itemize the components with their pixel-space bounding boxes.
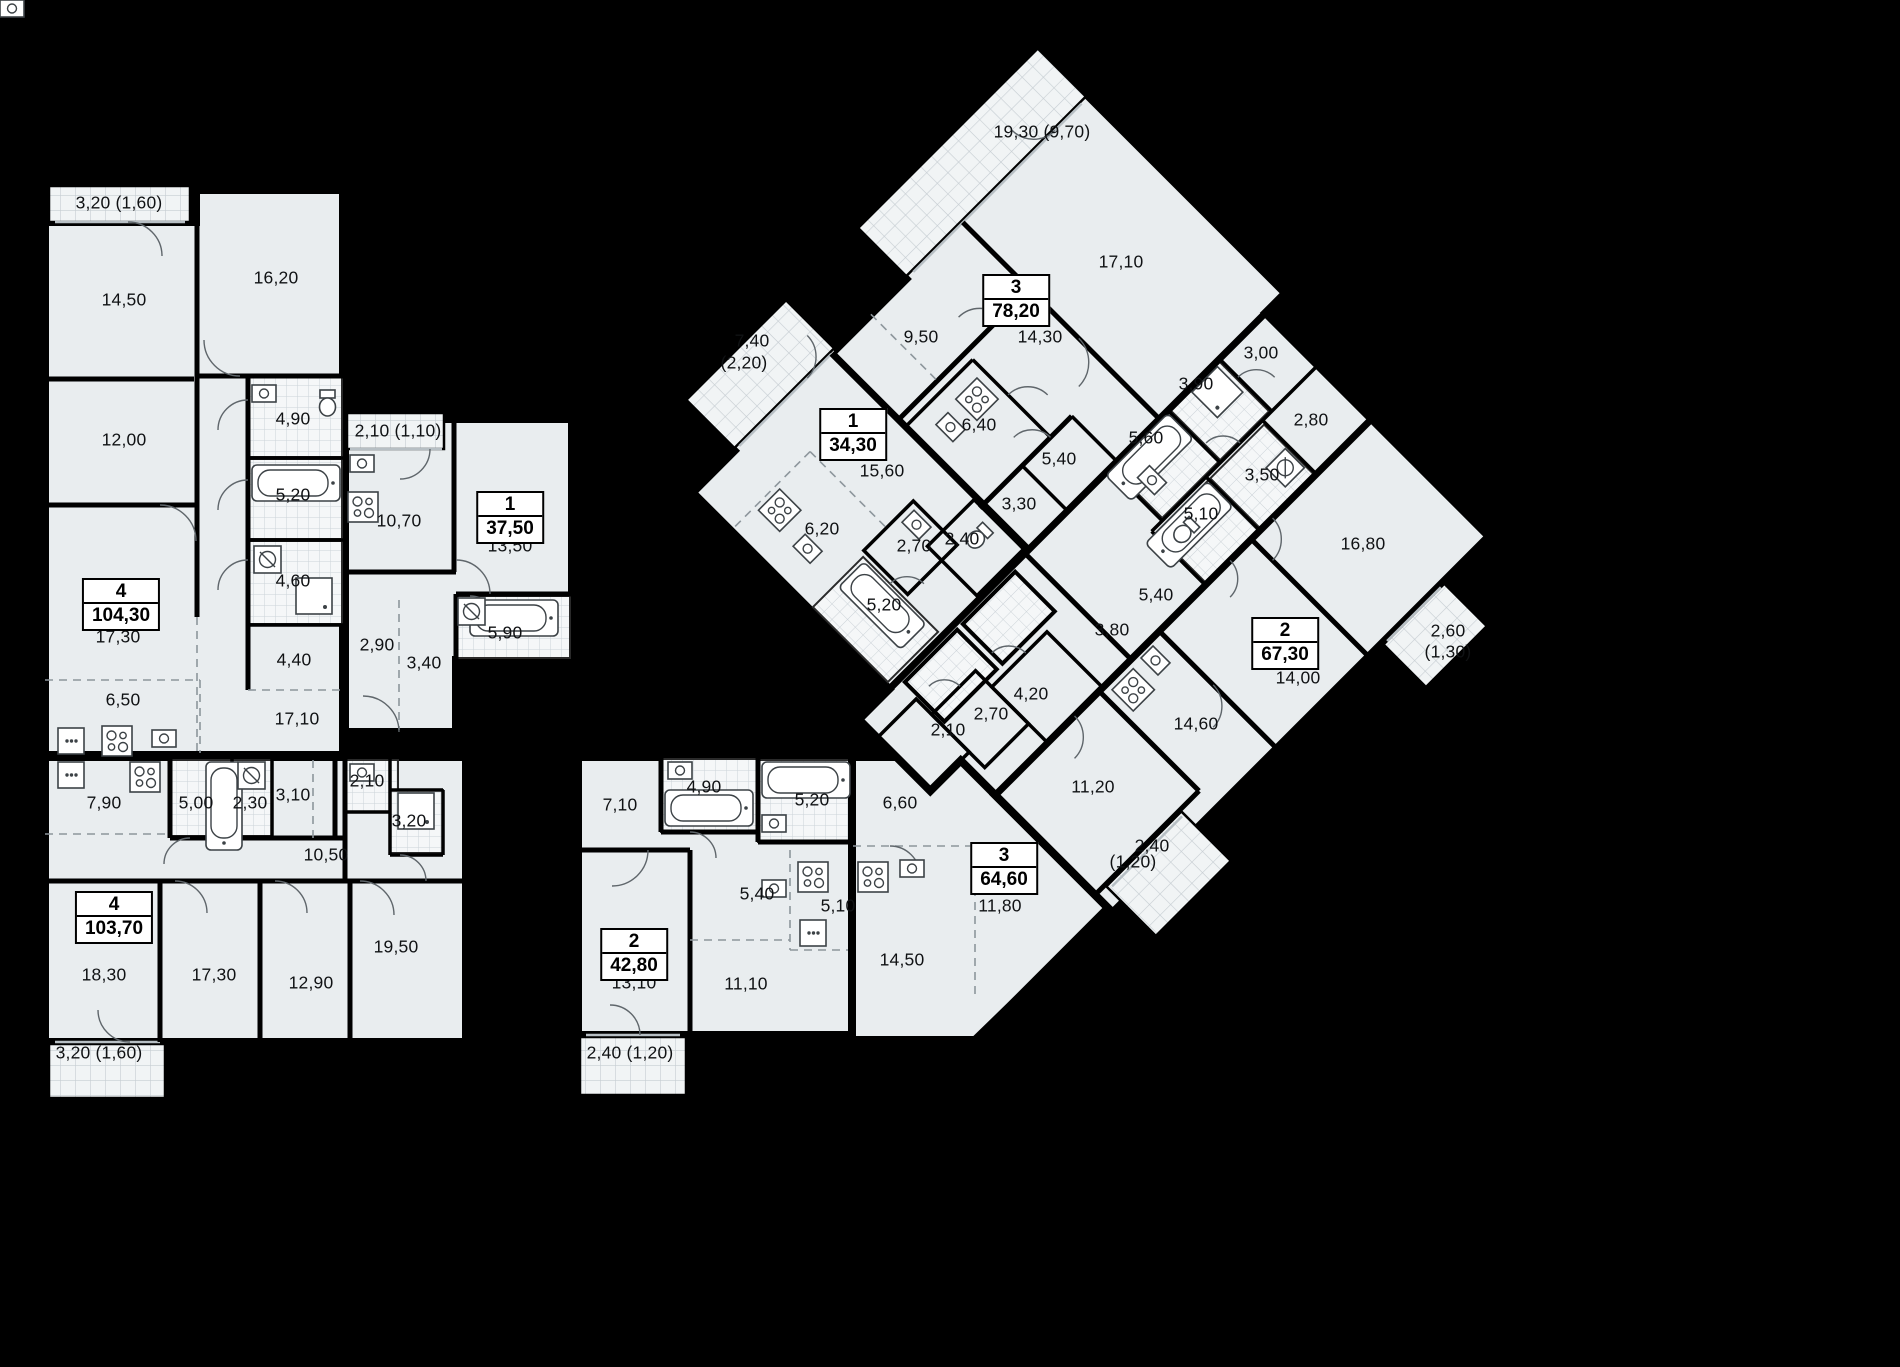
area-label: 5,40 (1139, 585, 1174, 606)
apartment-rooms-count: 3 (984, 276, 1048, 300)
area-label: 9,50 (904, 327, 939, 348)
apartment-rooms-count: 1 (821, 410, 885, 434)
area-label: 17,10 (275, 709, 320, 730)
area-label: 2,60 (1431, 621, 1466, 642)
area-label: 3,20 (1,60) (76, 193, 163, 214)
apartment-badge: 267,30 (1251, 617, 1319, 670)
area-label: 14,50 (102, 290, 147, 311)
area-label: (1,20) (1110, 852, 1157, 873)
area-label: 5,40 (740, 884, 775, 905)
area-label: 10,50 (304, 845, 349, 866)
area-label: 2,90 (360, 635, 395, 656)
area-label: 5,40 (1042, 449, 1077, 470)
apartment-rooms-count: 1 (478, 493, 542, 517)
apartment-area: 42,80 (602, 954, 666, 979)
area-label: 10,70 (377, 511, 422, 532)
apartment-badge: 4104,30 (82, 578, 160, 631)
area-label: 3,40 (407, 653, 442, 674)
area-label: 14,60 (1174, 714, 1219, 735)
area-label: 5,20 (795, 790, 830, 811)
apartment-area: 37,50 (478, 517, 542, 542)
area-label: 5,10 (1184, 504, 1219, 525)
area-label: 16,80 (1341, 534, 1386, 555)
area-label: 19,50 (374, 937, 419, 958)
area-label: 3,20 (392, 811, 427, 832)
area-label: 17,30 (192, 965, 237, 986)
area-label: 4,60 (276, 571, 311, 592)
area-label: 15,60 (860, 461, 905, 482)
area-label: 3,10 (276, 785, 311, 806)
area-label: 4,40 (277, 650, 312, 671)
area-label: 7,40 (735, 331, 770, 352)
apartment-badge: 378,20 (982, 274, 1050, 327)
area-label: 5,10 (821, 896, 856, 917)
area-label: (1,30) (1425, 642, 1472, 663)
apartment-rooms-count: 4 (77, 893, 151, 917)
area-label: 12,00 (102, 430, 147, 451)
apartment-badge: 134,30 (819, 408, 887, 461)
labels-layer: 3,20 (1,60)14,5016,2012,004,905,204,6017… (0, 0, 1900, 1367)
area-label: 14,50 (880, 950, 925, 971)
area-label: 4,20 (1014, 684, 1049, 705)
area-label: 6,50 (106, 690, 141, 711)
apartment-rooms-count: 2 (1253, 619, 1317, 643)
area-label: 5,60 (1129, 428, 1164, 449)
area-label: 6,40 (962, 415, 997, 436)
area-label: 4,90 (687, 777, 722, 798)
area-label: 3,50 (1245, 465, 1280, 486)
apartment-rooms-count: 3 (972, 844, 1036, 868)
area-label: 6,20 (805, 519, 840, 540)
area-label: 5,20 (867, 595, 902, 616)
area-label: 2,10 (1,10) (355, 421, 442, 442)
area-label: 18,30 (82, 965, 127, 986)
area-label: 2,80 (1294, 410, 1329, 431)
apartment-badge: 137,50 (476, 491, 544, 544)
apartment-rooms-count: 4 (84, 580, 158, 604)
area-label: 11,20 (1071, 777, 1115, 798)
area-label: 11,10 (724, 974, 768, 995)
area-label: 2,70 (974, 704, 1009, 725)
area-label: 3,90 (1179, 374, 1214, 395)
area-label: 3,00 (1244, 343, 1279, 364)
area-label: 11,80 (978, 896, 1022, 917)
apartment-area: 64,60 (972, 868, 1036, 893)
area-label: 5,00 (179, 793, 214, 814)
area-label: 19,30 (9,70) (994, 122, 1091, 143)
area-label: 5,20 (276, 485, 311, 506)
apartment-badge: 364,60 (970, 842, 1038, 895)
area-label: (2,20) (721, 353, 768, 374)
area-label: 17,10 (1099, 252, 1144, 273)
apartment-area: 103,70 (77, 917, 151, 942)
area-label: 2,40 (1,20) (587, 1043, 674, 1064)
floor-plan: 3,20 (1,60)14,5016,2012,004,905,204,6017… (0, 0, 1900, 1367)
area-label: 14,30 (1018, 327, 1063, 348)
area-label: 16,20 (254, 268, 299, 289)
area-label: 14,00 (1276, 668, 1321, 689)
apartment-area: 78,20 (984, 300, 1048, 325)
apartment-area: 104,30 (84, 604, 158, 629)
area-label: 6,60 (883, 793, 918, 814)
area-label: 7,90 (87, 793, 122, 814)
area-label: 5,90 (488, 623, 523, 644)
area-label: 2,10 (931, 720, 966, 741)
area-label: 2,70 (897, 536, 932, 557)
apartment-area: 67,30 (1253, 643, 1317, 668)
area-label: 3,80 (1095, 620, 1130, 641)
area-label: 12,90 (289, 973, 334, 994)
area-label: 2,40 (945, 529, 980, 550)
area-label: 2,30 (233, 793, 268, 814)
area-label: 7,10 (603, 795, 638, 816)
area-label: 3,30 (1002, 494, 1037, 515)
apartment-badge: 242,80 (600, 928, 668, 981)
area-label: 2,10 (350, 771, 385, 792)
apartment-badge: 4103,70 (75, 891, 153, 944)
area-label: 3,20 (1,60) (56, 1043, 143, 1064)
apartment-area: 34,30 (821, 434, 885, 459)
area-label: 4,90 (276, 409, 311, 430)
apartment-rooms-count: 2 (602, 930, 666, 954)
